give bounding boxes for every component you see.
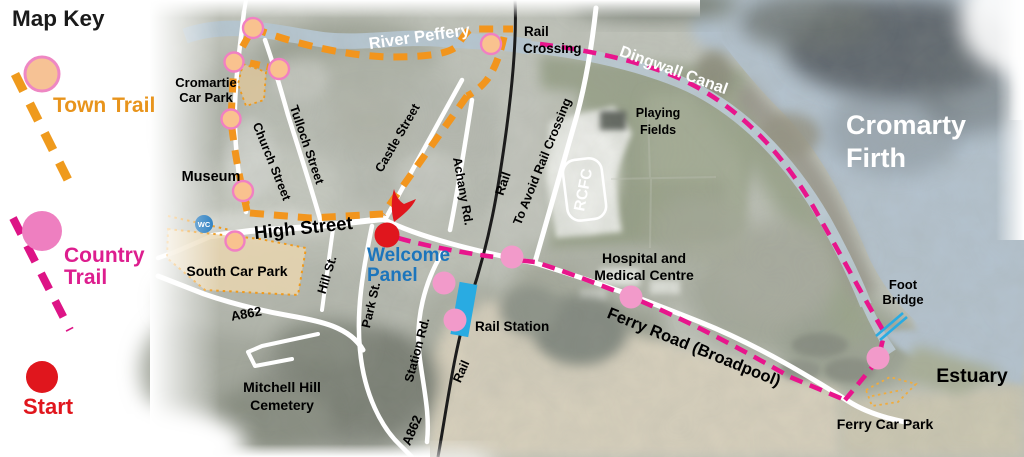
svg-text:Hospital and: Hospital and: [602, 250, 686, 266]
svg-text:Map Key: Map Key: [12, 6, 105, 31]
svg-text:Firth: Firth: [846, 143, 906, 173]
svg-text:Playing: Playing: [636, 106, 680, 120]
svg-text:Ferry Car Park: Ferry Car Park: [837, 416, 934, 432]
svg-text:Rail Station: Rail Station: [475, 319, 549, 334]
svg-text:Welcome: Welcome: [367, 245, 450, 266]
svg-text:Museum: Museum: [182, 169, 241, 185]
svg-text:Bridge: Bridge: [882, 292, 923, 307]
svg-text:Cemetery: Cemetery: [250, 397, 314, 413]
svg-text:South Car Park: South Car Park: [186, 263, 287, 279]
svg-text:Car Park: Car Park: [179, 90, 233, 105]
svg-text:Start: Start: [23, 394, 74, 419]
svg-text:Fields: Fields: [640, 123, 676, 137]
svg-text:Mitchell Hill: Mitchell Hill: [243, 379, 321, 395]
svg-text:Town Trail: Town Trail: [53, 94, 155, 117]
svg-text:Cromarty: Cromarty: [846, 110, 966, 140]
svg-text:Country: Country: [64, 244, 145, 267]
svg-text:Foot: Foot: [889, 277, 918, 292]
svg-text:Trail: Trail: [64, 266, 107, 289]
svg-text:Crossing: Crossing: [523, 41, 582, 56]
svg-text:Estuary: Estuary: [936, 365, 1008, 387]
svg-text:Cromartie: Cromartie: [175, 75, 236, 90]
svg-text:Rail: Rail: [524, 24, 549, 39]
svg-text:Medical Centre: Medical Centre: [594, 267, 694, 283]
